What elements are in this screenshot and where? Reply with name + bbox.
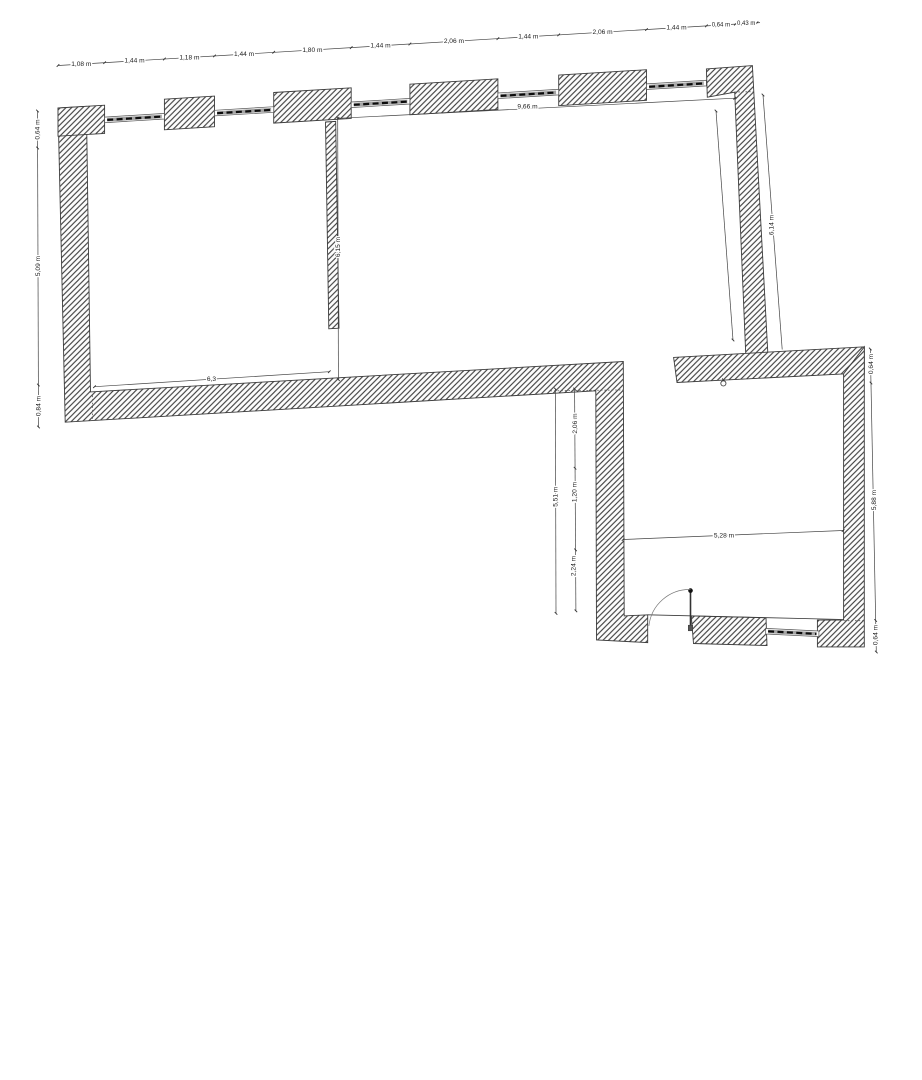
svg-text:1,44 m: 1,44 m [370,43,391,50]
svg-text:9,66 m: 9,66 m [517,104,538,111]
svg-text:6,15 m: 6,15 m [335,236,342,257]
svg-text:2,24 m: 2,24 m [571,555,578,576]
svg-text:5,88 m: 5,88 m [871,489,878,510]
svg-text:5,09 m: 5,09 m [35,255,42,276]
svg-text:5,28 m: 5,28 m [714,532,735,539]
svg-text:0,84 m: 0,84 m [36,395,43,416]
svg-text:1,18 m: 1,18 m [179,54,200,61]
svg-text:1,80 m: 1,80 m [302,47,323,54]
svg-text:0,43 m: 0,43 m [737,21,755,27]
svg-text:1,20 m: 1,20 m [572,481,579,502]
svg-text:1,08 m: 1,08 m [71,61,92,68]
svg-text:0,64 m: 0,64 m [872,624,879,645]
svg-text:6,3: 6,3 [207,376,216,383]
svg-text:0,64 m: 0,64 m [868,353,875,374]
svg-text:1,44 m: 1,44 m [234,51,255,58]
svg-text:6,14 m: 6,14 m [769,214,776,235]
svg-text:2,06 m: 2,06 m [444,38,465,45]
svg-text:1,44 m: 1,44 m [666,24,687,31]
svg-text:2,06 m: 2,06 m [572,413,579,434]
svg-text:1,44 m: 1,44 m [518,34,539,41]
svg-text:0,64 m: 0,64 m [712,23,730,29]
svg-text:2,06 m: 2,06 m [593,29,614,36]
svg-text:1,44 m: 1,44 m [124,58,145,65]
svg-text:5,51 m: 5,51 m [552,486,559,507]
svg-text:0,64 m: 0,64 m [34,119,41,140]
